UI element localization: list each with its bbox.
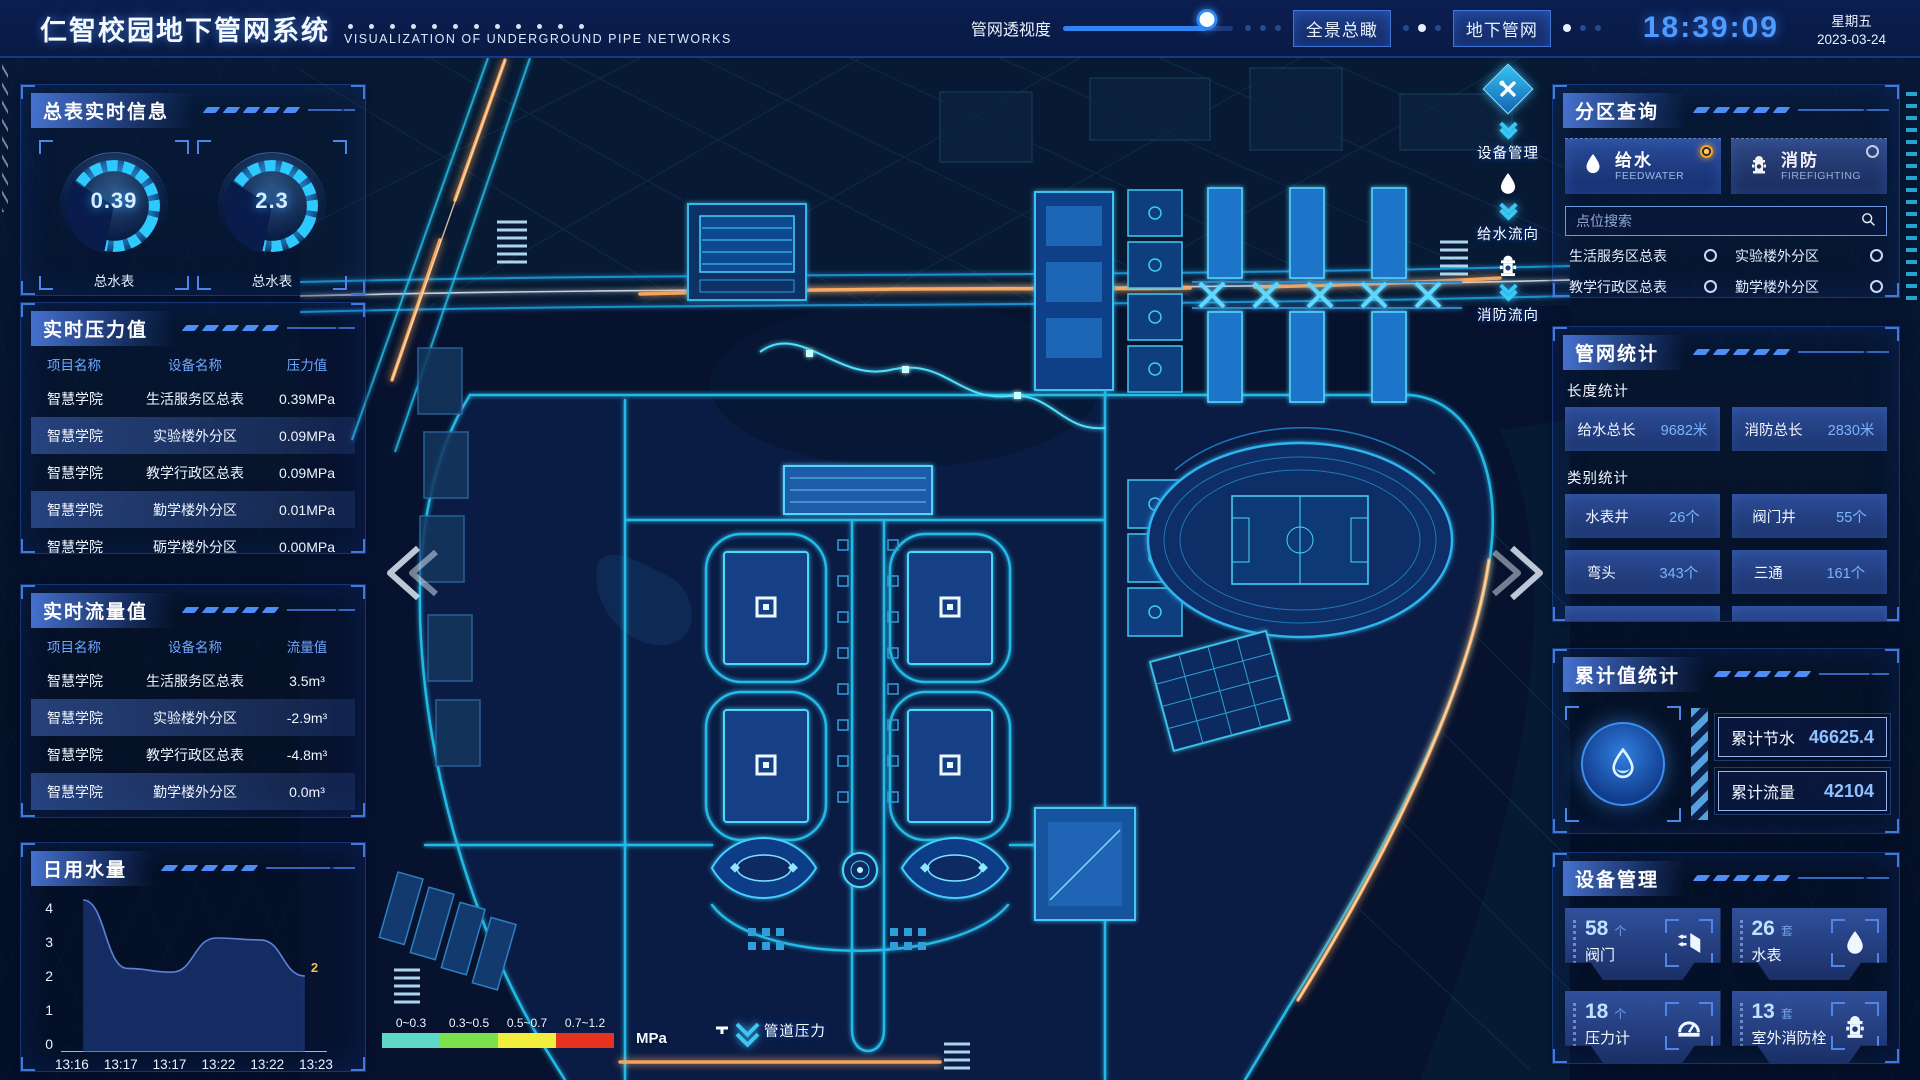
chart-end-label: 2 [311,960,318,975]
dots-separator [1245,25,1281,31]
table-row: 智慧学院教学行政区总表-4.8m³ [31,736,355,773]
zone-item[interactable]: 勤学楼外分区 [1735,271,1883,298]
table-row: 智慧学院教学行政区总表0.09MPa [31,454,355,491]
right-edge-ticks [1906,92,1917,304]
tab-feedwater[interactable]: 给水 FEEDWATER [1565,138,1721,194]
table-row: 智慧学院生活服务区总表3.5m³ [31,662,355,699]
feedwater-flow-tool[interactable]: 给水流向 [1477,169,1539,244]
legend-range: 0.3~0.5 [440,1016,498,1048]
dots-separator [1563,24,1601,32]
header-bar: 仁智校园地下管网系统 VISUALIZATION OF UNDERGROUND … [0,0,1920,58]
tab-radio-selected[interactable] [1700,145,1713,158]
left-edge-decor [2,62,8,212]
radio-icon [1704,280,1717,293]
water-saving-icon-card [1565,706,1681,822]
opacity-slider-label: 管网透视度 [971,16,1051,40]
table-row: 智慧学院勤学楼外分区0.01MPa [31,491,355,528]
tab-firefighting[interactable]: 消防 FIREFIGHTING [1731,138,1887,194]
search-input[interactable] [1576,213,1852,229]
outdoor-hydrant-icon [1831,1002,1879,1050]
hydrant-icon [1747,152,1771,181]
stat-box-partial [1565,606,1720,622]
zone-query-panel: 分区查询 给水 FEEDWATER 消防 FIREFIGHTING [1552,84,1900,298]
slash-decor [1716,671,1809,677]
overview-button[interactable]: 全景总瞰 [1293,10,1391,47]
legend-range: 0.7~1.2 [556,1016,614,1048]
campus-map [300,58,1570,1080]
underground-button[interactable]: 地下管网 [1453,10,1551,47]
daily-water-panel: 日用水量 43210 2 13:1613:1713:1713:2213:2213… [20,842,366,1072]
gauge-label: 瞬时流量 [197,293,347,296]
water-drop-icon [1495,169,1521,199]
panel-title: 分区查询 [1563,93,1685,128]
legend-swatch [440,1033,498,1048]
tool-label: 设备管理 [1477,142,1539,163]
tool-label: 消防流向 [1477,304,1539,325]
zone-list: 生活服务区总表 实验楼外分区 教学行政区总表 勤学楼外分区 砺学楼外分区 宿舍区… [1569,240,1883,298]
chart-xticks: 13:1613:1713:1713:2213:2213:23 [55,1057,333,1072]
stat-box: 消防总长2830米 [1732,407,1887,451]
panel-title: 日用水量 [31,851,153,886]
zone-item[interactable]: 生活服务区总表 [1569,240,1717,271]
point-search-box[interactable] [1565,206,1887,236]
legend-swatch [556,1033,614,1048]
pipe-pressure-legend: 0~0.3 0.3~0.5 0.5~0.7 0.7~1.2 MPa 管道压力 [382,1016,826,1048]
device-card-water-meter[interactable]: 26套 水表 [1732,908,1888,980]
legend-range: 0.5~0.7 [498,1016,556,1048]
accum-saving-box: 累计节水46625.4 [1718,717,1887,757]
pressure-gauge: 0.39 [58,150,170,262]
realtime-pressure-panel: 实时压力值 项目名称设备名称压力值 智慧学院生活服务区总表0.39MPa 智慧学… [20,302,366,554]
map-tool-stack: 设备管理 给水流向 消防流向 [1462,66,1554,325]
app-subtitle: VISUALIZATION OF UNDERGROUND PIPE NETWOR… [344,32,732,46]
tools-icon [1485,66,1531,112]
slash-decor [1695,107,1788,113]
dots-separator [1403,24,1441,32]
stat-box: 给水总长9682米 [1565,407,1720,451]
hazard-stripes-decor [1691,708,1708,820]
pipe-opacity-slider[interactable] [1063,17,1233,39]
flow-gauge-card: 2.3 总水表 瞬时流量 [197,140,347,290]
legend-unit: MPa [636,1030,667,1047]
tool-label: 给水流向 [1477,223,1539,244]
table-row: 智慧学院砺学楼外分区0.00MPa [31,528,355,554]
radio-icon [1704,249,1717,262]
panel-title: 总表实时信息 [31,93,195,128]
accumulated-stats-panel: 累计值统计 累计节水46625.4 累计流量42104 [1552,648,1900,834]
stat-box: 三通161个 [1732,550,1887,594]
zone-item[interactable]: 实验楼外分区 [1735,240,1883,271]
pressure-gauge-icon [1665,1002,1713,1050]
device-card-pressure-gauge[interactable]: 18个 压力计 [1565,991,1721,1063]
firefighting-flow-tool[interactable]: 消防流向 [1477,250,1539,325]
gymnasium [1035,808,1135,920]
tab-label: 消防 [1781,151,1861,171]
category-stats-label: 类别统计 [1567,467,1885,488]
flow-gauge: 2.3 [216,150,328,262]
device-management-panel: 设备管理 58个 阀门 26套 水表 18个 压力计 [1552,852,1900,1064]
radio-icon [1870,280,1883,293]
chart-yticks: 43210 [29,900,61,1052]
panel-title: 实时流量值 [31,593,174,628]
table-row: 智慧学院生活服务区总表0.39MPa [31,380,355,417]
stat-box: 弯头343个 [1565,550,1720,594]
slash-decor [184,607,277,613]
hydrant-icon [1494,250,1522,280]
flow-table: 项目名称设备名称流量值 智慧学院生活服务区总表3.5m³ 智慧学院实验楼外分区-… [31,630,355,818]
header-dots [344,24,732,29]
pressure-meter-icon [713,1022,731,1040]
slash-decor [184,325,277,331]
stat-box: 阀门井55个 [1732,494,1887,538]
gauge-label: 总水表 [39,272,189,293]
table-header: 项目名称设备名称流量值 [31,630,355,662]
water-drop-icon [1581,722,1665,806]
device-card-valve[interactable]: 58个 阀门 [1565,908,1721,980]
library-building [784,466,932,514]
water-meter-icon [1831,919,1879,967]
gauge-label: 当前压力值 [39,293,189,296]
legend-swatch [498,1033,556,1048]
table-row: 智慧学院勤学楼外分区0.0m³ [31,773,355,810]
gauge-label: 总水表 [197,272,347,293]
panel-title: 设备管理 [1563,861,1685,896]
pressure-gauge-card: 0.39 总水表 当前压力值 [39,140,189,290]
search-icon[interactable] [1860,211,1876,232]
table-header: 项目名称设备名称压力值 [31,348,355,380]
device-management-tool[interactable]: 设备管理 [1477,66,1539,163]
clock-date: 2023-03-24 [1817,32,1886,47]
brand: 仁智校园地下管网系统 VISUALIZATION OF UNDERGROUND … [40,9,732,48]
legend-swatch [382,1033,440,1048]
app-title: 仁智校园地下管网系统 [40,9,330,48]
slash-decor [163,865,256,871]
daily-chart-svg [61,900,327,1052]
gauge-value: 2.3 [216,188,328,214]
pool-building [688,204,806,300]
legend-title: 管道压力 [764,1020,826,1041]
table-row: 智慧学院砺学楼外分区2.3m³ [31,810,355,818]
water-drop-icon [1581,152,1605,181]
valve-icon [1665,919,1713,967]
panel-title: 累计值统计 [1563,657,1706,692]
app-root: 仁智校园地下管网系统 VISUALIZATION OF UNDERGROUND … [0,0,1920,1080]
pressure-table: 项目名称设备名称压力值 智慧学院生活服务区总表0.39MPa 智慧学院实验楼外分… [31,348,355,554]
zone-item[interactable]: 教学行政区总表 [1569,271,1717,298]
tab-label: 给水 [1615,151,1684,171]
slash-decor [1695,875,1788,881]
daily-water-chart: 43210 2 [29,900,355,1052]
panel-title: 管网统计 [1563,335,1685,370]
slider-fill [1063,26,1208,31]
slider-knob[interactable] [1197,9,1218,30]
academic-building [1035,192,1113,390]
tab-radio[interactable] [1866,145,1879,158]
slash-decor [1695,349,1788,355]
clock-time: 18:39:09 [1643,11,1779,45]
accum-flow-box: 累计流量42104 [1718,771,1887,811]
realtime-flow-panel: 实时流量值 项目名称设备名称流量值 智慧学院生活服务区总表3.5m³ 智慧学院实… [20,584,366,818]
stat-box: 水表井26个 [1565,494,1720,538]
radio-icon [1870,249,1883,262]
panel-title: 实时压力值 [31,311,174,346]
gauge-value: 0.39 [58,188,170,214]
table-row: 智慧学院实验楼外分区-2.9m³ [31,699,355,736]
table-row: 智慧学院实验楼外分区0.09MPa [31,417,355,454]
tab-sublabel: FIREFIGHTING [1781,170,1861,182]
length-stats-label: 长度统计 [1567,380,1885,401]
clock-weekday: 星期五 [1831,10,1872,30]
device-card-outdoor-hydrant[interactable]: 13套 室外消防栓 [1732,991,1888,1063]
stat-box-partial [1732,606,1887,622]
network-stats-panel: 管网统计 长度统计 给水总长9682米 消防总长2830米 类别统计 水表井26… [1552,326,1900,622]
legend-range: 0~0.3 [382,1016,440,1048]
meter-info-panel: 总表实时信息 0.39 总水表 当前压力值 2.3 总水表 瞬时流量 [20,84,366,296]
tab-sublabel: FEEDWATER [1615,170,1684,182]
slash-decor [205,107,298,113]
